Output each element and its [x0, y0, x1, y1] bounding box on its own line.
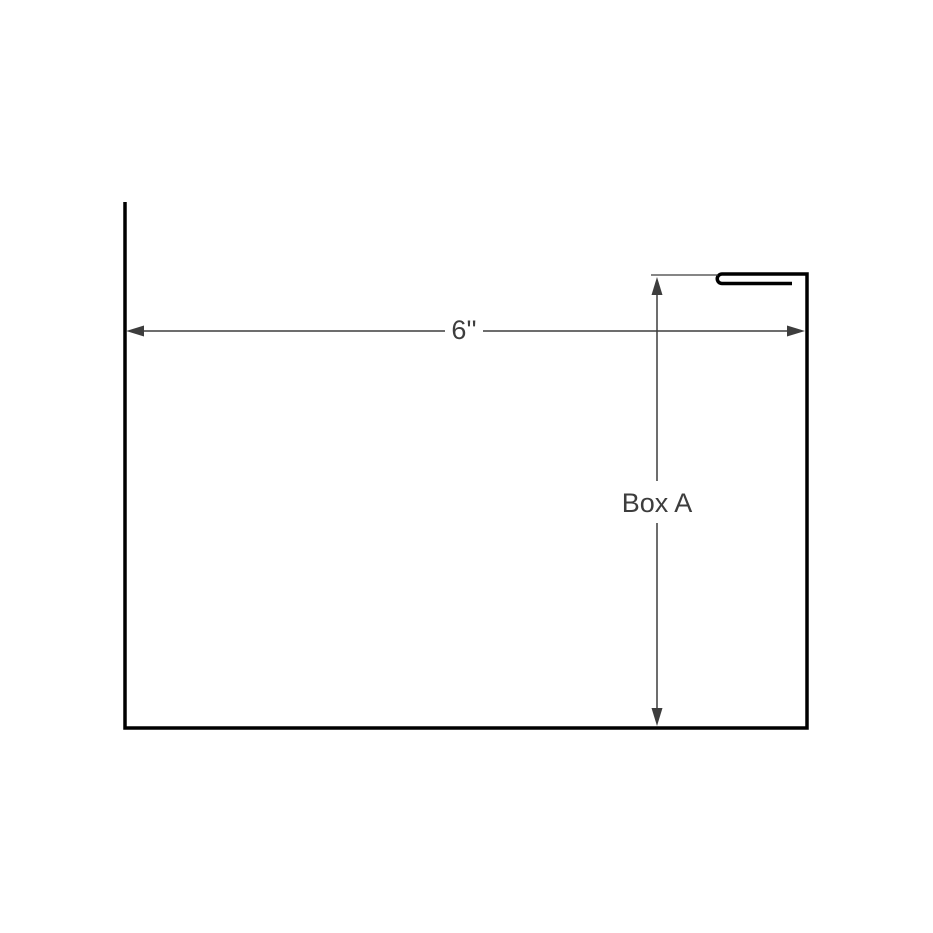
- width-dimension-label: 6'': [451, 315, 476, 345]
- box-profile-outline: [125, 202, 807, 728]
- arrow-left-icon: [126, 326, 144, 337]
- height-dimension-label: Box A: [622, 488, 693, 518]
- arrow-up-icon: [652, 277, 663, 295]
- arrow-right-icon: [787, 326, 805, 337]
- arrow-down-icon: [652, 708, 663, 726]
- technical-drawing-canvas: 6'' Box A: [0, 0, 933, 933]
- technical-drawing-page: 6'' Box A: [0, 0, 933, 933]
